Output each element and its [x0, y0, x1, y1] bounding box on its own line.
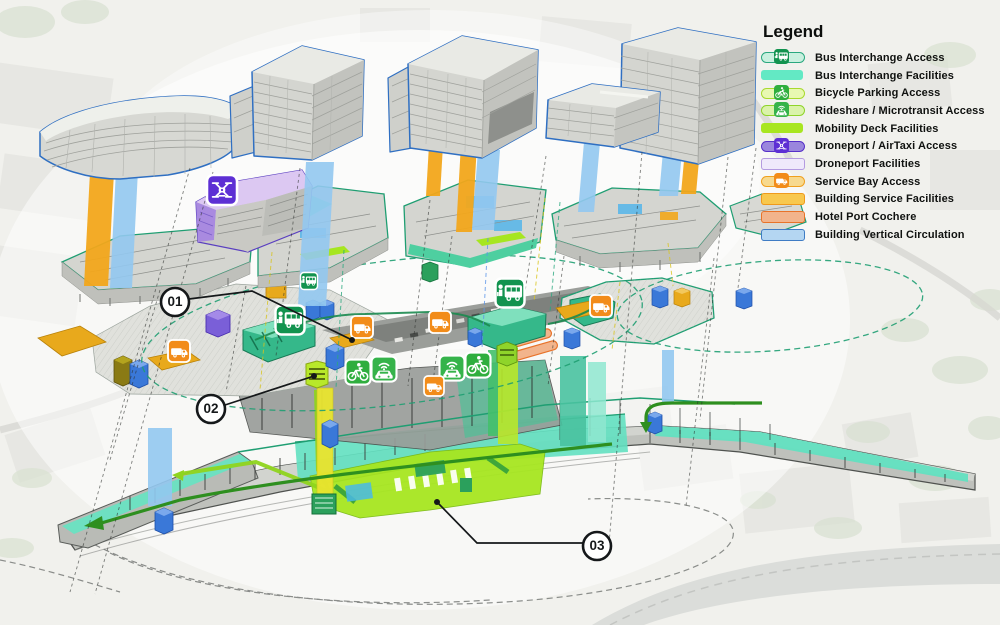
legend-item: Building Service Facilities: [761, 191, 999, 209]
legend-item: Rideshare / Microtransit Access: [761, 102, 999, 120]
legend-item-label: Building Vertical Circulation: [815, 229, 965, 241]
legend-item-label: Bicycle Parking Access: [815, 87, 940, 99]
legend-swatch: [761, 173, 805, 190]
legend-item: Bicycle Parking Access: [761, 84, 999, 102]
legend-swatch: [761, 155, 805, 172]
legend-title: Legend: [763, 22, 999, 42]
legend-item: Droneport Facilities: [761, 155, 999, 173]
legend-item-label: Bus Interchange Access: [815, 52, 945, 64]
legend-item: Droneport / AirTaxi Access: [761, 137, 999, 155]
legend-swatch: [761, 120, 805, 137]
legend-item-label: Service Bay Access: [815, 176, 920, 188]
bus-interchange-access-icon: [301, 273, 318, 290]
mobility-lift-box-2: [497, 342, 517, 366]
droneport-airtaxi-access-icon: [774, 138, 789, 153]
svg-text:03: 03: [589, 538, 605, 553]
rideshare-microtransit-access-icon: [372, 357, 397, 382]
service-bay-access-icon: [168, 340, 190, 362]
bicycle-parking-access-icon: [346, 360, 371, 385]
legend-item: Hotel Port Cochere: [761, 208, 999, 226]
bicycle-parking-access-icon: [774, 85, 789, 100]
stair-core-box: [422, 262, 438, 282]
mobility-hub-diagram: 01 02 03 Legend Bus Interchange Access B…: [0, 0, 1000, 625]
service-bay-access-icon: [424, 376, 444, 396]
service-box: [114, 356, 132, 386]
svg-text:01: 01: [167, 294, 183, 309]
legend-item: Service Bay Access: [761, 173, 999, 191]
legend-item-label: Hotel Port Cochere: [815, 211, 916, 223]
legend-swatch: [761, 209, 805, 226]
bicycle-parking-access-icon: [466, 353, 491, 378]
legend-item: Bus Interchange Access: [761, 49, 999, 67]
legend-swatch: [761, 226, 805, 243]
legend-swatch: [761, 49, 805, 66]
bus-interchange-access-icon: [774, 49, 789, 64]
legend-panel: Legend Bus Interchange Access Bus Interc…: [761, 22, 999, 244]
legend-swatch: [761, 67, 805, 84]
legend-item-label: Mobility Deck Facilities: [815, 123, 938, 135]
legend-items: Bus Interchange Access Bus Interchange F…: [761, 49, 999, 244]
legend-item-label: Building Service Facilities: [815, 193, 954, 205]
legend-swatch: [761, 191, 805, 208]
droneport-airtaxi-access-icon: [207, 175, 237, 205]
svg-text:02: 02: [203, 401, 218, 416]
legend-item: Mobility Deck Facilities: [761, 120, 999, 138]
legend-item: Bus Interchange Facilities: [761, 67, 999, 85]
mobility-lift-box: [306, 361, 328, 388]
bus-interchange-access-icon: [496, 279, 525, 308]
service-bay-access-icon: [590, 295, 612, 317]
legend-item-label: Droneport / AirTaxi Access: [815, 140, 957, 152]
legend-item-label: Bus Interchange Facilities: [815, 70, 954, 82]
legend-swatch: [761, 85, 805, 102]
legend-swatch: [761, 138, 805, 155]
service-bay-access-icon: [351, 316, 373, 338]
legend-item-label: Rideshare / Microtransit Access: [815, 105, 985, 117]
legend-item: Building Vertical Circulation: [761, 226, 999, 244]
legend-swatch: [761, 102, 805, 119]
rideshare-microtransit-access-icon: [774, 102, 789, 117]
service-bay-access-icon: [774, 173, 789, 188]
legend-item-label: Droneport Facilities: [815, 158, 920, 170]
service-bay-access-icon: [429, 311, 451, 333]
droneport-lift-box: [206, 310, 230, 337]
